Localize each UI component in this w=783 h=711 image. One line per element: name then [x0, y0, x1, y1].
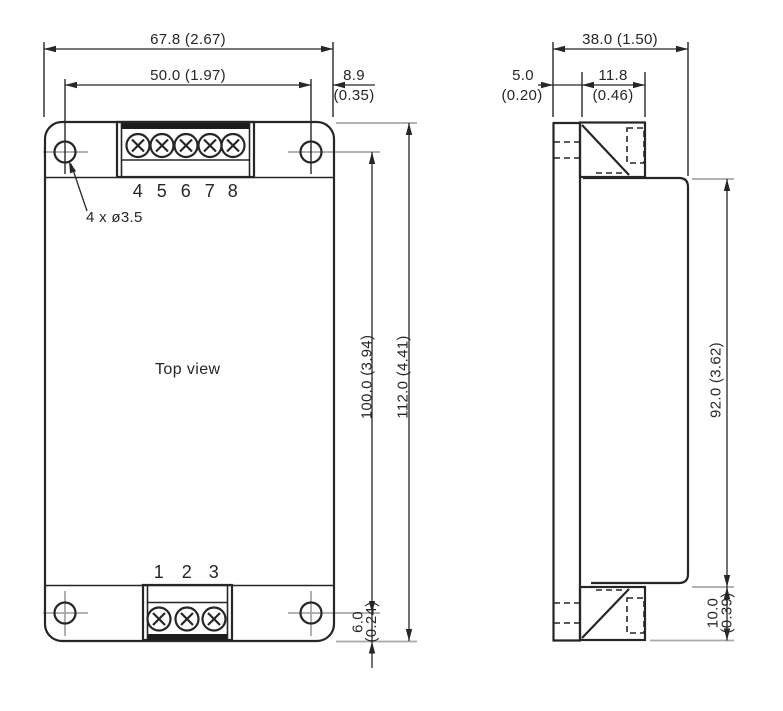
dim-plate-thickness: 5.0 (0.20) — [502, 67, 583, 117]
dim-terminal-height-in: (0.39) — [718, 593, 735, 634]
dim-height-outer: 112.0 (4.41) — [394, 123, 412, 641]
pin-label-2: 2 — [182, 562, 193, 582]
terminal-block-top-outline — [117, 122, 254, 177]
dim-width-outer-text: 67.8 (2.67) — [150, 31, 226, 48]
dim-body-height: 92.0 (3.62) — [707, 179, 730, 587]
hole-callout-text: 4 x ø3.5 — [86, 209, 143, 226]
screw-icon — [203, 608, 226, 631]
dim-terminal-width: 11.8 (0.46) — [582, 67, 645, 117]
mounting-plate — [553, 123, 582, 641]
dim-depth-outer-text: 38.0 (1.50) — [582, 31, 658, 48]
dim-edge-offset-mm: 8.9 — [343, 67, 365, 84]
pin-label-3: 3 — [209, 562, 220, 582]
terminal-block-top: 4 5 6 7 8 — [117, 122, 254, 201]
top-view: 4 5 6 7 8 1 2 3 — [43, 31, 417, 668]
view-label: Top view — [155, 361, 220, 378]
hidden-screw-outline — [627, 598, 644, 633]
dim-height-outer-text: 112.0 (4.41) — [394, 335, 411, 418]
dim-width-holes: 50.0 (1.97) — [65, 67, 311, 174]
dim-bottom-offset: 6.0 (0.24) — [349, 602, 380, 669]
terminal-block-bottom-outline — [143, 585, 232, 640]
pin-label-4: 4 — [133, 181, 144, 201]
pin-label-1: 1 — [154, 562, 165, 582]
pin-label-5: 5 — [157, 181, 168, 201]
dim-plate-mm: 5.0 — [512, 67, 534, 84]
screw-icon — [222, 134, 245, 157]
dim-height-holes-text: 100.0 (3.94) — [358, 335, 375, 420]
screw-icon — [148, 608, 171, 631]
dim-edge-offset: 8.9 (0.35) — [333, 67, 375, 104]
screw-icon — [176, 608, 199, 631]
side-view: 38.0 (1.50) 5.0 (0.20) 11.8 (0.46) 92.0 … — [502, 31, 736, 641]
terminal-block-top-bar — [122, 123, 249, 129]
terminal-block-bottom-side — [554, 587, 645, 640]
screw-icon — [151, 134, 174, 157]
dim-body-height-text: 92.0 (3.62) — [707, 342, 724, 418]
mechanical-drawing-page: 4 5 6 7 8 1 2 3 — [0, 0, 783, 711]
terminal-diagonal — [582, 125, 629, 175]
terminal-screws-bottom — [148, 608, 226, 631]
dim-terminal-width-in: (0.46) — [593, 87, 634, 104]
dim-terminal-height: 10.0 (0.39) — [704, 587, 735, 641]
pin-label-7: 7 — [205, 181, 216, 201]
dim-plate-in: (0.20) — [502, 87, 543, 104]
chassis-body-outline — [583, 178, 688, 583]
terminal-screws-top — [127, 134, 245, 157]
dim-height-holes: 100.0 (3.94) — [358, 152, 375, 613]
screw-icon — [199, 134, 222, 157]
terminal-block-top-side — [554, 123, 645, 178]
dimension-drawing: 4 5 6 7 8 1 2 3 — [0, 0, 783, 711]
pin-label-8: 8 — [228, 181, 239, 201]
terminal-diagonal — [582, 589, 629, 638]
pin-label-6: 6 — [181, 181, 192, 201]
hole-callout: 4 x ø3.5 — [66, 160, 143, 226]
pin-numbers-top: 4 5 6 7 8 — [133, 181, 239, 201]
screw-icon — [175, 134, 198, 157]
terminal-block-bottom-bar — [148, 634, 227, 640]
terminal-block-bottom: 1 2 3 — [143, 562, 232, 640]
screw-icon — [127, 134, 150, 157]
dim-width-holes-text: 50.0 (1.97) — [150, 67, 226, 84]
dim-terminal-width-mm: 11.8 — [598, 67, 627, 84]
dim-edge-offset-in: (0.35) — [334, 87, 375, 104]
pin-numbers-bottom: 1 2 3 — [154, 562, 220, 582]
hidden-screw-outline — [627, 128, 644, 163]
dim-bottom-offset-in: (0.24) — [363, 602, 380, 643]
